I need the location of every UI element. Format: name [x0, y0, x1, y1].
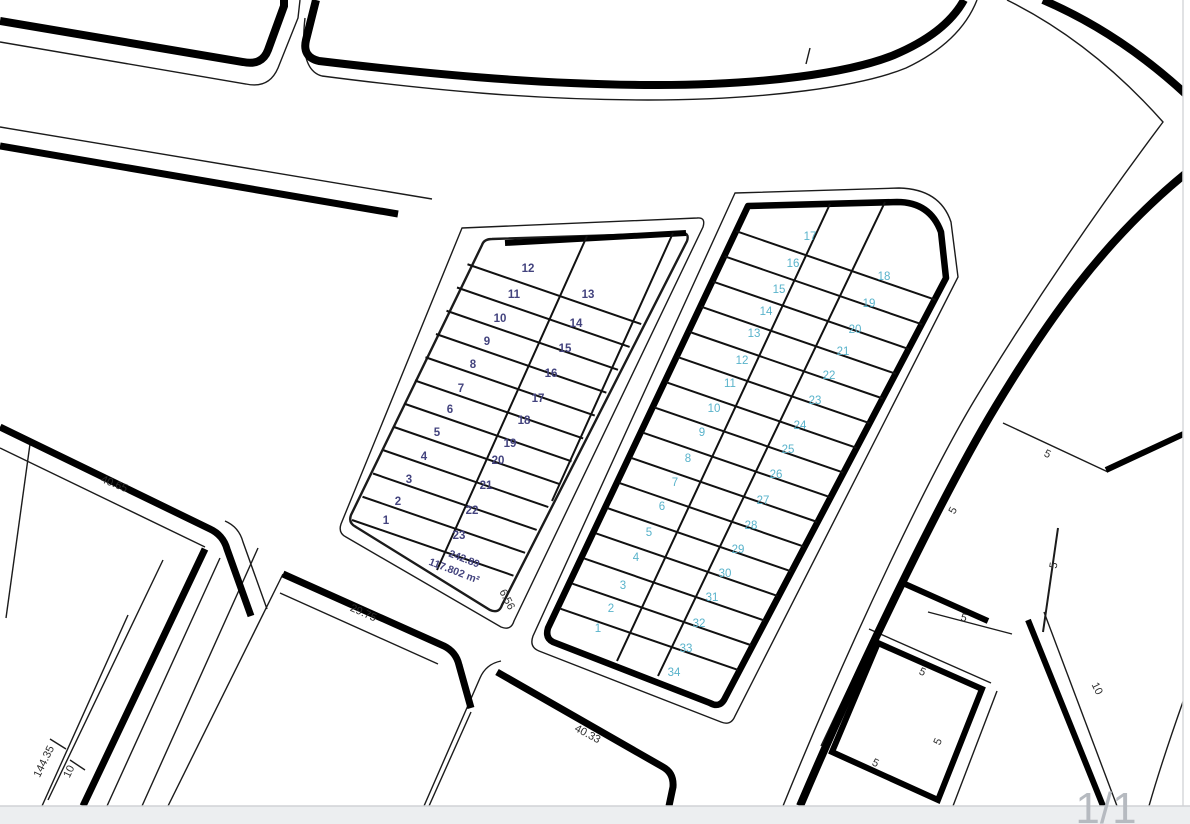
parcel-number: 31	[706, 592, 719, 604]
grid-line	[437, 236, 587, 570]
parcel-number: 11	[724, 378, 736, 390]
parcel-number: 2	[395, 496, 401, 508]
parcel-line	[107, 558, 220, 806]
dimension-label: 5	[1048, 561, 1061, 569]
parcel-line	[869, 629, 991, 683]
dimension-label: 5	[1042, 448, 1053, 461]
parcel-number: 12	[736, 355, 749, 367]
parcel-number: 34	[668, 667, 681, 679]
boundary-tick	[806, 48, 810, 64]
parcel-edge	[1106, 431, 1190, 470]
grid-line	[654, 407, 843, 472]
parcel-number: 8	[470, 359, 477, 371]
road-edge	[0, 0, 284, 63]
parcel-number: 15	[559, 343, 572, 355]
parcel-number: 30	[719, 568, 732, 580]
road-edge	[0, 127, 432, 199]
grid-line	[736, 231, 935, 300]
plan-viewer[interactable]: 1211109876543211314151617181920212223171…	[0, 0, 1190, 824]
parcel-number: 3	[620, 580, 626, 592]
parcel-number: 19	[863, 298, 876, 310]
parcel-number: 25	[782, 444, 795, 456]
parcel-number: 21	[837, 346, 850, 358]
parcel-line	[1003, 423, 1108, 472]
parcel-line	[168, 574, 283, 806]
parcel-number: 6	[659, 501, 665, 513]
parcel-number: 23	[809, 395, 822, 407]
dimension-label: 5	[932, 737, 945, 747]
parcel-edge	[905, 584, 988, 621]
parcel-number: 10	[494, 313, 507, 325]
parcel-number: 18	[878, 271, 891, 283]
grid-line	[643, 433, 831, 498]
parcel-number: 9	[484, 336, 490, 348]
dimension-label: 29.75	[348, 602, 378, 624]
parcel-number: 13	[582, 289, 595, 301]
road-edge	[305, 0, 964, 85]
parcel-number: 26	[770, 469, 783, 481]
parcel-line	[280, 593, 438, 664]
parcel-number: 17	[804, 231, 817, 243]
parcel-number: 22	[823, 370, 836, 382]
parcel-number: 9	[699, 427, 705, 439]
roads-thin	[0, 0, 1190, 806]
grid-line	[394, 427, 560, 484]
parcel-number: 20	[492, 455, 505, 467]
grid-line	[689, 332, 882, 399]
grid-line	[572, 584, 751, 646]
grid-line	[701, 307, 896, 374]
road-edge	[1149, 682, 1190, 806]
block-outlines	[350, 202, 946, 705]
road-edge	[800, 170, 1190, 806]
parcel-number: 18	[518, 415, 531, 427]
dimension-label: 5	[917, 666, 927, 679]
parcel-number: 33	[680, 643, 693, 655]
page-footer-strip	[0, 807, 1190, 824]
parcel-number: 16	[787, 258, 800, 270]
grid-line	[405, 404, 572, 462]
parcel-number: 28	[745, 520, 758, 532]
grid-line	[666, 382, 856, 448]
parcel-number: 3	[406, 474, 412, 486]
parcel-number: 8	[685, 453, 691, 465]
road-edge	[1043, 0, 1190, 98]
parcel-number: 32	[693, 618, 706, 630]
grid-line	[725, 256, 923, 324]
parcel-number: 14	[760, 306, 773, 318]
parcel-number: 10	[708, 403, 721, 415]
road-edge	[1028, 620, 1103, 806]
page-indicator: 1/1	[1075, 784, 1136, 824]
grid-line	[713, 282, 909, 350]
road-edge	[0, 146, 398, 214]
parcel-number: 23	[453, 530, 466, 542]
parcel-line	[429, 712, 471, 806]
parcel-number: 16	[545, 368, 558, 380]
parcel-number: 6	[447, 404, 453, 416]
parcel-number: 4	[421, 451, 428, 463]
roads-thick	[0, 0, 1190, 806]
parcel-line	[0, 448, 205, 547]
parcel-number: 17	[532, 393, 545, 405]
parcel-number: 11	[508, 289, 521, 301]
road-edge	[1044, 612, 1117, 806]
parcel-line	[6, 444, 30, 618]
dimension-label: 10	[1089, 681, 1105, 697]
dimension-label: 144.35	[32, 744, 58, 780]
parcel-number: 21	[480, 480, 493, 492]
parcel-number: 1	[383, 515, 390, 527]
parcel-number: 2	[608, 603, 614, 615]
parcel-edge	[283, 574, 471, 708]
parcel-line	[42, 615, 128, 806]
site-plan-canvas: 1211109876543211314151617181920212223171…	[0, 0, 1190, 824]
parcel-number: 24	[794, 420, 807, 432]
parcel-number: 19	[504, 438, 517, 450]
parcel-number: 22	[466, 505, 479, 517]
dimension-label: 5	[947, 505, 960, 516]
parcel-number: 27	[757, 495, 770, 507]
parcel-number: 1	[595, 623, 601, 635]
parcel-number: 7	[672, 477, 678, 489]
parcel-number: 5	[434, 427, 441, 439]
parcel-number: 7	[458, 383, 464, 395]
parcel-number: 13	[748, 328, 761, 340]
parcel-number: 12	[522, 263, 535, 275]
dimension-label: 40.65	[99, 473, 129, 494]
parcel-number: 15	[773, 284, 786, 296]
dimension-label: 5	[870, 757, 881, 770]
parcel-number: 4	[633, 552, 640, 564]
parcel-edge	[0, 427, 251, 616]
parcel-number: 14	[570, 318, 583, 330]
parcel-edge	[832, 643, 982, 800]
parcel-number: 20	[849, 324, 862, 336]
parcel-grid	[352, 202, 935, 676]
grid-line	[561, 609, 738, 670]
grid-line	[678, 357, 870, 423]
parcel-number: 5	[646, 527, 652, 539]
parcel-number: 29	[732, 544, 745, 556]
